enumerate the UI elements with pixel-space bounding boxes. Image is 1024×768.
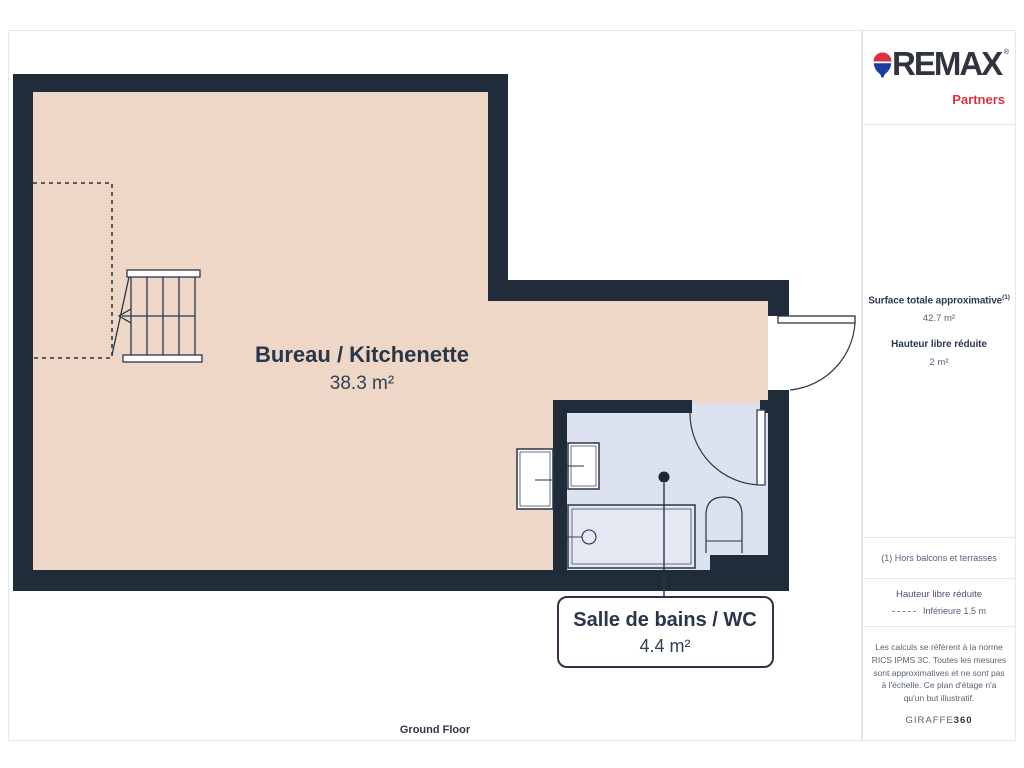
legend-item-label: Inférieure 1.5 m — [923, 606, 986, 616]
info-sidebar: REMAX ® Partners Surface totale approxim… — [862, 30, 1016, 741]
surface-total-label-text: Surface totale approximative — [868, 295, 1002, 306]
legend-row: Inférieure 1.5 m — [892, 606, 986, 616]
wall-left — [13, 74, 33, 591]
remax-balloon-icon — [872, 51, 893, 79]
entrance-door-leaf — [778, 316, 855, 323]
legal-disclaimer: Les calculs se réfèrent à la norme RICS … — [871, 641, 1007, 705]
bathroom-callout-box — [558, 597, 773, 667]
bathroom-door-opening-floor — [691, 403, 761, 415]
reduced-height-label: Hauteur libre réduite — [891, 339, 987, 350]
bathroom-name-label: Salle de bains / WC — [573, 609, 756, 631]
brand-logo: REMAX ® Partners — [863, 31, 1015, 124]
bathroom-area-label: 4.4 m² — [639, 636, 690, 656]
legal-box: Les calculs se réfèrent à la norme RICS … — [862, 626, 1016, 741]
stairs-bottom-landing — [123, 355, 202, 362]
stairs-top-landing — [127, 270, 200, 277]
surface-footnote-marker: (1) — [1002, 294, 1010, 301]
provider-suffix: 360 — [954, 715, 973, 726]
bathtub — [567, 505, 695, 568]
reduced-height-dash-sample — [892, 611, 916, 612]
reduced-height-value: 2 m² — [930, 357, 949, 368]
wall-top — [13, 74, 508, 92]
wall-bathroom-bottom-right — [710, 555, 789, 591]
wall-upper-right — [488, 74, 508, 280]
legend-title: Hauteur libre réduite — [896, 589, 982, 600]
bathtub-outline — [568, 505, 695, 568]
kitchenette-counter — [517, 449, 553, 509]
surface-total-label: Surface totale approximative(1) — [868, 294, 1010, 306]
wall-bathroom-top — [553, 400, 692, 413]
counter-outline — [517, 449, 553, 509]
wall-extension-top — [488, 280, 789, 301]
bathroom-door-leaf — [757, 410, 765, 485]
floor-name-label: Ground Floor — [400, 724, 471, 736]
footnote-text: (1) Hors balcons et terrasses — [881, 553, 997, 563]
wall-right-above-door — [768, 280, 789, 316]
provider-name: GIRAFFE — [905, 715, 953, 726]
main-room-area-label: 38.3 m² — [330, 373, 394, 394]
main-room-name-label: Bureau / Kitchenette — [255, 342, 469, 367]
stats-box: Surface totale approximative(1) 42.7 m² … — [862, 124, 1016, 538]
brand-subtitle: Partners — [952, 92, 1005, 107]
legend-box: Hauteur libre réduite Inférieure 1.5 m — [862, 578, 1016, 627]
floorplan-page: Salle de bains / WC 4.4 m² Bureau / Kitc… — [0, 0, 1024, 768]
brand-name: REMAX — [892, 45, 1001, 83]
provider-credit: GIRAFFE360 — [905, 715, 972, 726]
wall-bathroom-left — [553, 400, 567, 591]
callout-marker-dot — [659, 472, 670, 483]
footnote-box: (1) Hors balcons et terrasses — [862, 537, 1016, 579]
bathroom-sink — [567, 443, 599, 489]
brand-logo-box: REMAX ® Partners — [862, 30, 1016, 125]
brand-trademark: ® — [1004, 49, 1009, 56]
wall-bottom — [13, 570, 789, 591]
surface-total-value: 42.7 m² — [923, 313, 955, 324]
